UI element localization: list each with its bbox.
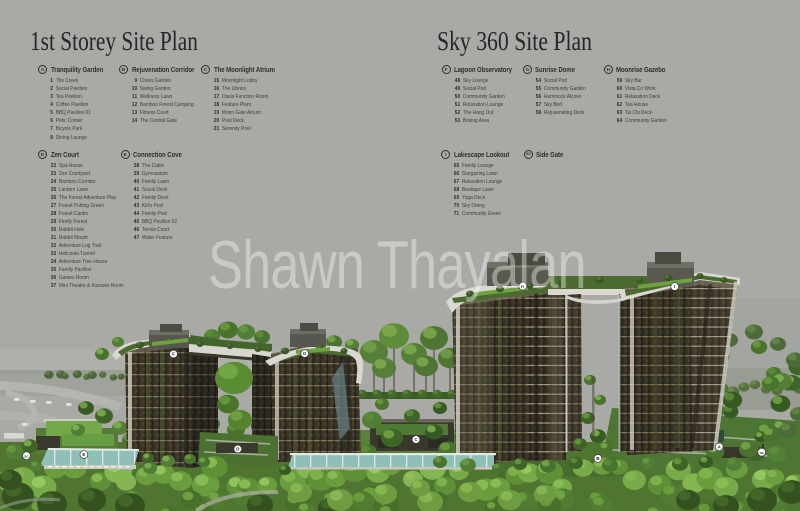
svg-text:SG: SG xyxy=(24,454,29,458)
svg-text:G: G xyxy=(303,351,307,356)
svg-text:E: E xyxy=(82,452,85,457)
svg-text:SG: SG xyxy=(759,451,764,455)
svg-text:F: F xyxy=(172,352,175,357)
svg-text:I: I xyxy=(674,284,675,289)
